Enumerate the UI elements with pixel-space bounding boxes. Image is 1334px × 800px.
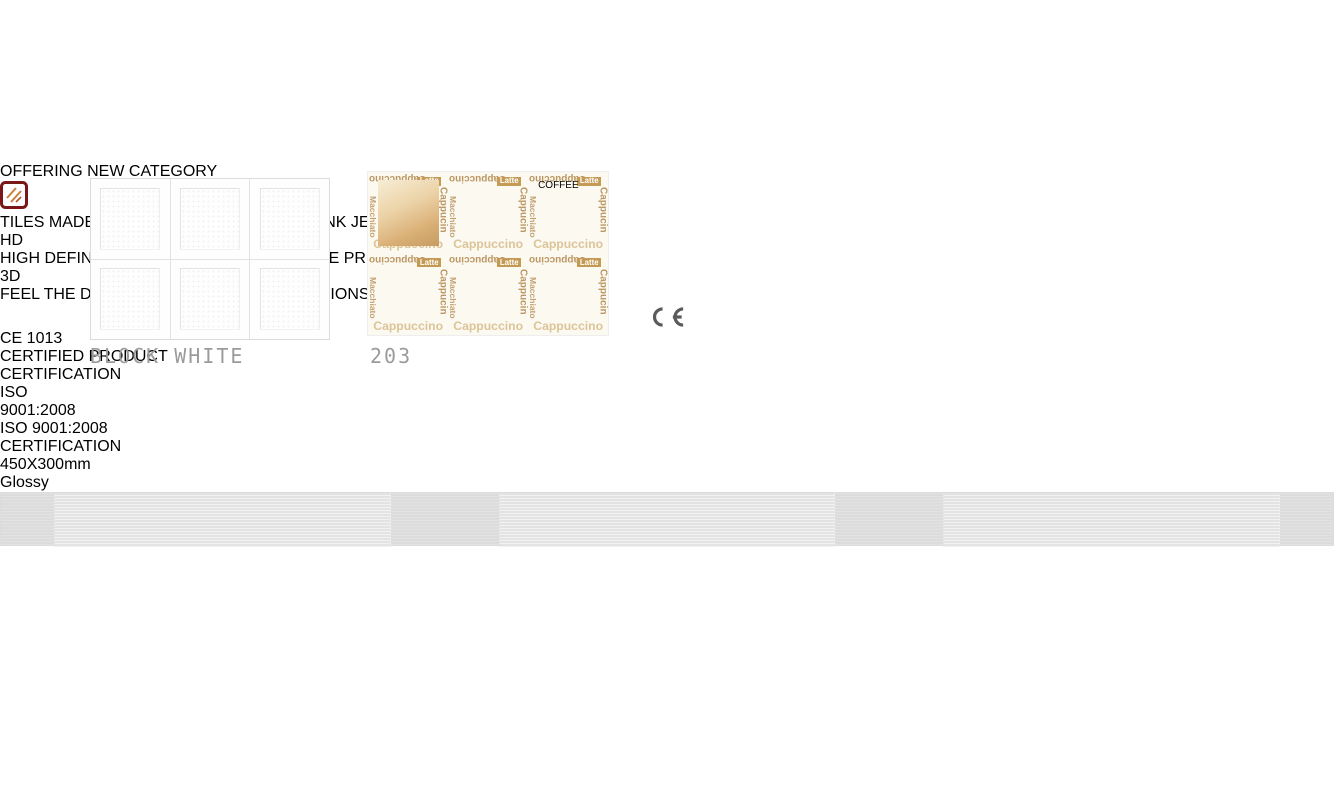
white-tile-cell: [171, 260, 250, 340]
white-tile-cell: [250, 260, 329, 340]
decor-word: Cappucin: [438, 269, 448, 315]
photo-latte-cup: [378, 180, 439, 245]
finish-label: Glossy: [0, 474, 49, 491]
embossed-square: [499, 545, 836, 547]
wall-tile-block-white: [0, 507, 1334, 510]
decor-word: Macchiato: [368, 196, 377, 238]
white-tile-cell: [91, 260, 170, 340]
wall-layout-panel: CappuccinoLatteMacchiatoCappucinCappucci…: [0, 492, 1334, 546]
finish-bar: Glossy: [0, 474, 1334, 492]
iso-certification: ISO 9001:2008 ISO 9001:2008 CERTIFICATIO…: [0, 384, 1334, 456]
wall-tile-block-white: [0, 510, 1334, 513]
embossed-square: [54, 545, 391, 547]
size-label: 450X300mm: [0, 456, 91, 473]
white-tile-cell: [91, 179, 170, 259]
ce-mark-icon: [645, 304, 689, 330]
wall-tile-block-white: [0, 513, 1334, 516]
wall-tile-block-white: [0, 519, 1334, 522]
photo-coffee-beans-cup: COFFEE: [538, 180, 599, 245]
embossed-square: [100, 188, 160, 250]
wall-tile-block-white: [0, 537, 1334, 540]
coffee-cup-text: COFFEE: [538, 180, 579, 191]
decor-word: Cappucin: [598, 187, 608, 233]
embossed-square: [943, 545, 1280, 547]
decor-word: Macchiato: [368, 277, 377, 319]
photo-croissant: [538, 262, 599, 327]
white-tile-cell: [171, 179, 250, 259]
embossed-square: [100, 268, 160, 330]
wall-tile-block-white: [0, 495, 1334, 498]
decor-word: Macchiato: [528, 196, 537, 238]
embossed-square: [180, 188, 240, 250]
watermark-graphic: [0, 546, 1334, 800]
block-white-tile-preview: [90, 178, 330, 340]
decor-word: Macchiato: [448, 277, 457, 319]
wall-tile-block-white: [0, 522, 1334, 525]
decor-203-label: 203: [370, 344, 412, 368]
block-white-label: BLOCK WHITE: [90, 344, 244, 368]
wall-tile-block-white: [0, 528, 1334, 531]
wall-tile-block-white: [0, 531, 1334, 534]
photo-black-coffee-cup: [378, 262, 439, 327]
wall-tile-block-white: [0, 525, 1334, 528]
wall-tile-block-white: [0, 504, 1334, 507]
wall-tile-block-white: [0, 543, 1334, 546]
size-bar: 450X300mm: [0, 456, 1334, 474]
iso-mark-icon: ISO: [0, 384, 1334, 402]
photo-cream-cake: [458, 180, 519, 245]
decor-word: Cappucin: [438, 187, 448, 233]
decor-203-tile-preview: CappuccinoLatteMacchiatoCappucinCappucci…: [368, 172, 608, 335]
embossed-square: [260, 268, 320, 330]
photo-part-bgblur: [412, 184, 439, 213]
wall-tile-block-white: [0, 498, 1334, 501]
embossed-square: [180, 268, 240, 330]
decor-word: Cappucin: [518, 269, 528, 315]
catalog-page: BLOCK WHITE CappuccinoLatteMacchiatoCapp…: [0, 0, 1334, 800]
white-tile-cell: [250, 179, 329, 259]
embossed-square: [260, 188, 320, 250]
wall-tile-block-white: [0, 534, 1334, 537]
wall-tile-block-white: [0, 492, 1334, 495]
decor-word: Macchiato: [528, 277, 537, 319]
wall-tile-block-white: [0, 516, 1334, 519]
decor-word: Cappucin: [598, 269, 608, 315]
decor-word: Cappucin: [518, 187, 528, 233]
iso-caption: ISO 9001:2008 CERTIFICATION: [0, 420, 1334, 456]
wall-tile-block-white: [0, 540, 1334, 543]
decor-word: Macchiato: [448, 196, 457, 238]
wall-tile-block-white: [0, 501, 1334, 504]
iso-code: 9001:2008: [0, 402, 1334, 420]
photo-tiramisu-cup: [458, 262, 519, 327]
